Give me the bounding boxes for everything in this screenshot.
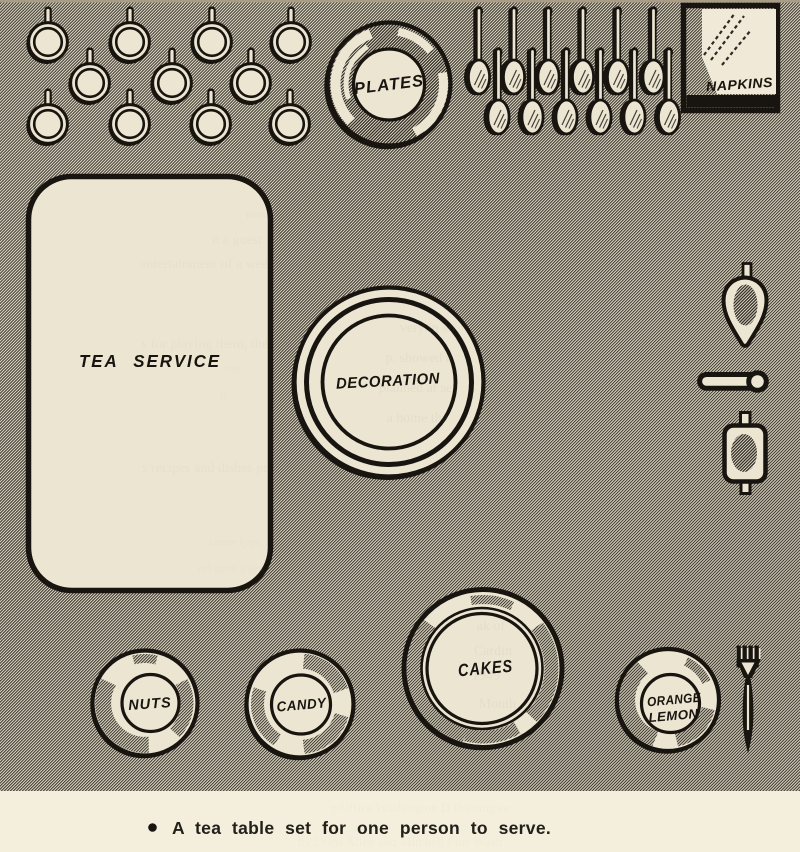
svg-text:s recipes and dishes pr: s recipes and dishes pr: [142, 461, 268, 476]
svg-text:s for playing them, the: s for playing them, the: [142, 337, 268, 352]
svg-text:nd give a tea: nd give a tea: [198, 560, 264, 575]
svg-text:entertainment of a wee: entertainment of a wee: [140, 257, 268, 272]
svg-text:n a guest: n a guest: [212, 233, 262, 248]
svg-text:some type: some type: [209, 534, 262, 549]
svg-text:was: was: [245, 206, 265, 221]
svg-text:me: me: [224, 360, 240, 375]
svg-text:A tea table set for one person: A tea table set for one person to serve.: [172, 818, 551, 838]
svg-text:TEA SERVICE: TEA SERVICE: [79, 351, 221, 371]
svg-text:very in so: very in so: [400, 321, 455, 336]
svg-text:g Office Washington D Print: g Office Washington D Printing ce: [330, 800, 510, 815]
svg-text:d.: d.: [220, 386, 230, 401]
svg-text:ak of: ak of: [477, 619, 506, 634]
svg-text:NUTS: NUTS: [128, 695, 172, 714]
svg-text:a home the: a home the: [387, 411, 448, 426]
svg-text:Month: Month: [479, 697, 516, 712]
svg-text:p. showed a: p. showed a: [386, 351, 453, 366]
